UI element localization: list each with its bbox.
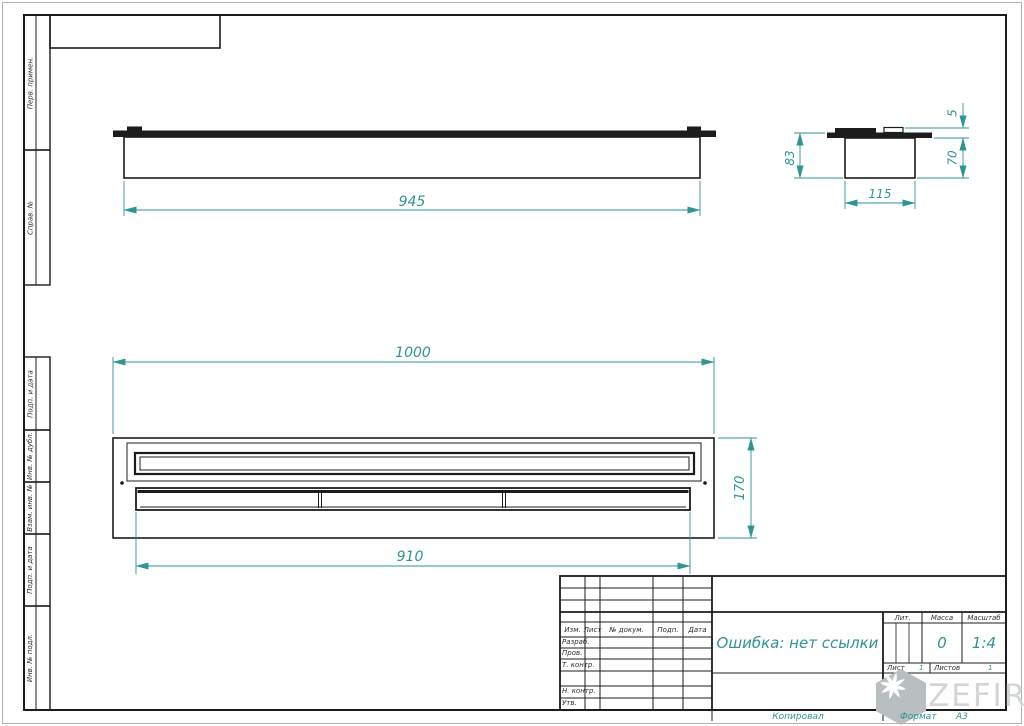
dim-side-width: 115 [869, 187, 892, 201]
footer-copied-label: Копировал [713, 712, 883, 723]
drawing-sheet: 945 83 115 70 5 [0, 0, 1024, 726]
side-view [827, 128, 932, 179]
tb-role-nkontr: Н. контр. [562, 688, 596, 695]
tb-header-data: Дата [683, 624, 712, 636]
plan-view [113, 438, 714, 538]
front-view [113, 127, 716, 179]
tb-header-podp: Подп. [653, 624, 683, 636]
tb-role-tkontr: Т. контр. [562, 662, 595, 669]
tb-role-razrab: Разраб. [562, 639, 590, 646]
tb-scale-value: 1:4 [962, 623, 1006, 663]
margin-label-podp-data-1: Подп. и дата [24, 357, 36, 430]
tb-sheet-label: Лист [887, 665, 905, 672]
footer-format-label: Формат [900, 713, 937, 722]
dim-front-length: 945 [399, 194, 426, 210]
margin-label-inv-dubl: Инв. № дубл. [24, 430, 36, 482]
dim-side-overall-height: 83 [783, 150, 797, 165]
tb-role-utv: Утв. [562, 700, 577, 707]
tb-mass-value: 0 [922, 623, 962, 663]
dim-plan-depth: 170 [733, 476, 748, 501]
tb-sheets-value: 1 [988, 665, 992, 672]
tb-role-prov: Пров. [562, 650, 582, 657]
tb-sheet-value: 1 [919, 665, 923, 672]
margin-label-sprav-no: Справ. № [24, 150, 36, 285]
margin-label-podp-data-2: Подп. и дата [24, 534, 36, 606]
document-name: Ошибка: нет ссылки [713, 613, 882, 672]
dim-plan-lid-length: 910 [397, 549, 424, 565]
top-left-designation-box [50, 15, 220, 48]
dim-side-tab-height: 5 [946, 109, 960, 117]
tb-header-list: Лист [585, 624, 600, 636]
tb-mass-label: Масса [922, 613, 962, 623]
tb-header-izm: Изм. [560, 624, 585, 636]
margin-label-perv-primen: Перв. примен. [24, 15, 36, 150]
margin-label-vzam-inv: Взам. инв. № [24, 482, 36, 534]
tb-header-docnum: № докум. [600, 624, 653, 636]
dim-plan-overall-length: 1000 [395, 345, 431, 361]
footer-format-value: А3 [956, 713, 968, 722]
tb-lit-label: Лит. [883, 613, 922, 623]
zefire-watermark-text: ZEFIRE [928, 678, 1024, 714]
margin-label-inv-podl: Инв. № подл. [24, 606, 36, 710]
tb-sheets-label: Листов [934, 665, 960, 672]
dim-side-body-height: 70 [946, 150, 960, 166]
tb-scale-label: Масштаб [962, 613, 1006, 623]
